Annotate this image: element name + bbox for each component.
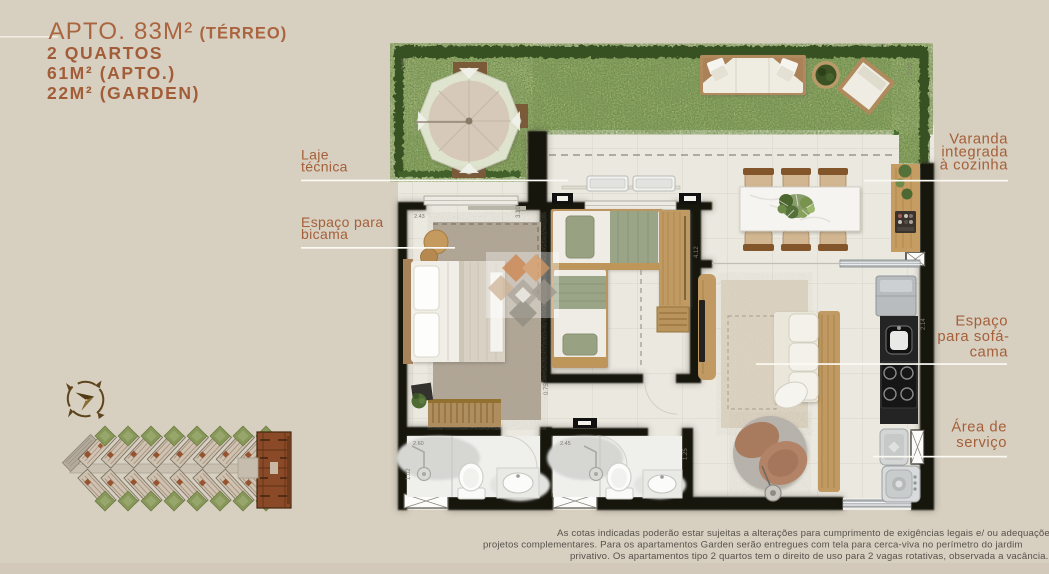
- svg-text:serviço: serviço: [956, 435, 1007, 451]
- svg-text:2.14: 2.14: [921, 318, 927, 330]
- svg-text:2 QUARTOS: 2 QUARTOS: [47, 43, 163, 63]
- svg-text:projetos complementares. Para: projetos complementares. Para os apartam…: [483, 540, 1023, 551]
- svg-text:2.43: 2.43: [414, 214, 425, 220]
- svg-text:22M² (GARDEN): 22M² (GARDEN): [47, 83, 200, 103]
- svg-text:para sofá-: para sofá-: [937, 329, 1009, 345]
- svg-text:técnica: técnica: [301, 159, 348, 175]
- svg-text:3.10: 3.10: [516, 206, 522, 218]
- svg-text:privativo. Os apartamentos tip: privativo. Os apartamentos tipo 2 quarto…: [570, 551, 1048, 562]
- svg-text:As cotas indicadas poderão est: As cotas indicadas poderão estar sujeita…: [557, 528, 1049, 539]
- svg-text:0.75: 0.75: [544, 383, 550, 395]
- svg-text:2.60: 2.60: [413, 441, 424, 447]
- svg-text:4.12: 4.12: [694, 246, 700, 258]
- svg-text:1.25: 1.25: [683, 448, 689, 460]
- svg-text:2.45: 2.45: [560, 441, 571, 447]
- svg-text:1.02: 1.02: [406, 468, 412, 480]
- svg-text:2.00: 2.00: [908, 63, 914, 75]
- svg-text:bicama: bicama: [301, 226, 348, 242]
- svg-text:cama: cama: [970, 345, 1009, 361]
- svg-text:2.86: 2.86: [402, 58, 408, 70]
- svg-text:61M² (APTO.): 61M² (APTO.): [47, 63, 176, 83]
- svg-text:Espaço: Espaço: [955, 314, 1008, 330]
- svg-text:Área de: Área de: [951, 419, 1007, 436]
- svg-text:à cozinha: à cozinha: [940, 158, 1009, 174]
